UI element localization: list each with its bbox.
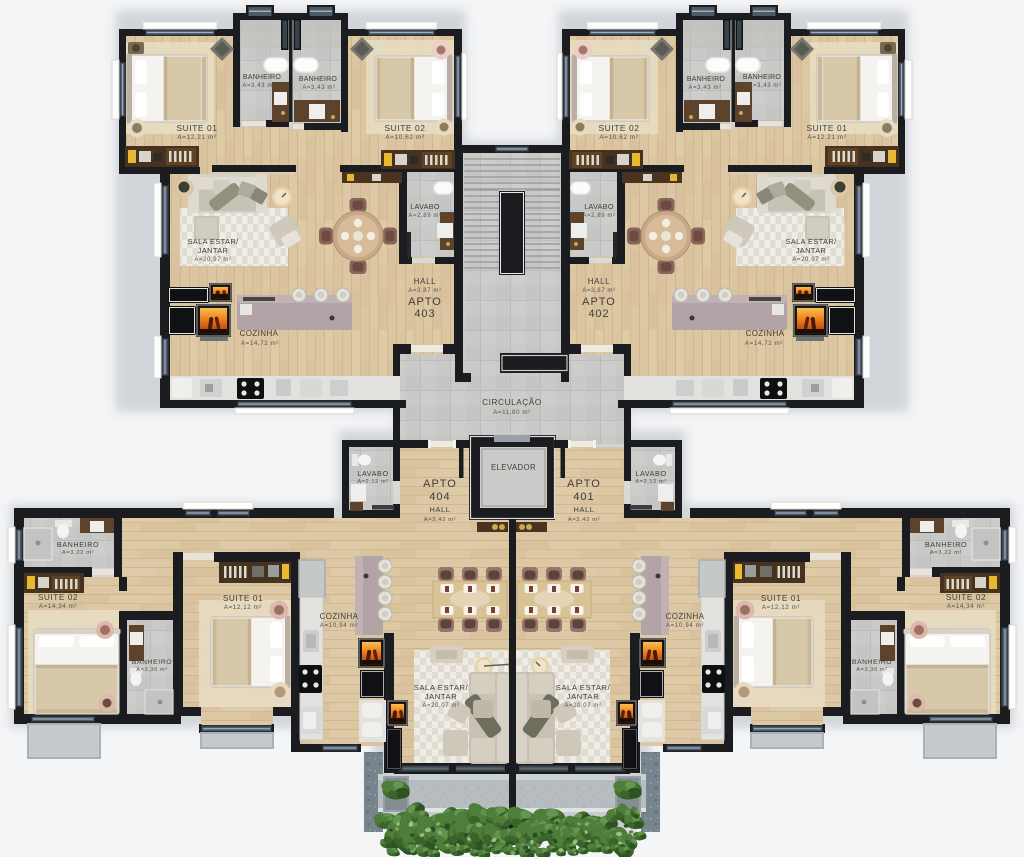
svg-text:A=3,42 m²: A=3,42 m²: [568, 517, 600, 523]
svg-text:APTO: APTO: [582, 296, 616, 308]
svg-text:A=12,12 m²: A=12,12 m²: [224, 604, 262, 611]
svg-text:A=3,87 m²: A=3,87 m²: [408, 288, 441, 294]
svg-text:SUITE 02: SUITE 02: [598, 123, 639, 133]
svg-text:LAVABO: LAVABO: [635, 469, 666, 478]
svg-text:A=10,62 m²: A=10,62 m²: [599, 134, 638, 141]
svg-text:SUITE 01: SUITE 01: [761, 594, 801, 603]
svg-text:BANHEIRO: BANHEIRO: [687, 76, 726, 83]
svg-text:JANTAR: JANTAR: [425, 692, 458, 701]
svg-text:SUITE 01: SUITE 01: [223, 594, 263, 603]
svg-text:HALL: HALL: [430, 505, 451, 514]
svg-text:ELEVADOR: ELEVADOR: [491, 463, 536, 472]
svg-text:SUITE 01: SUITE 01: [176, 123, 217, 133]
svg-text:JANTAR: JANTAR: [796, 246, 827, 255]
svg-text:COZINHA: COZINHA: [746, 329, 785, 338]
svg-text:A=3,43 m²: A=3,43 m²: [302, 85, 335, 91]
svg-text:SUITE 02: SUITE 02: [38, 593, 78, 602]
svg-text:A=3,42 m²: A=3,42 m²: [424, 517, 456, 523]
svg-text:APTO: APTO: [423, 478, 457, 490]
svg-text:BANHEIRO: BANHEIRO: [132, 659, 172, 666]
svg-text:A=3,87 m²: A=3,87 m²: [582, 288, 615, 294]
svg-text:A=20,97 m²: A=20,97 m²: [194, 257, 231, 263]
svg-text:A=12,12 m²: A=12,12 m²: [762, 604, 800, 611]
svg-text:APTO: APTO: [567, 478, 601, 490]
svg-text:A=10,94 m²: A=10,94 m²: [666, 622, 704, 629]
svg-text:SUITE 01: SUITE 01: [806, 123, 847, 133]
svg-text:SUITE 02: SUITE 02: [946, 593, 986, 602]
svg-text:LAVABO: LAVABO: [410, 202, 440, 211]
svg-text:401: 401: [573, 491, 594, 503]
svg-text:A=2,89 m²: A=2,89 m²: [582, 213, 615, 219]
svg-text:A=3,43 m²: A=3,43 m²: [688, 85, 721, 91]
svg-text:A=3,22 m²: A=3,22 m²: [62, 550, 94, 556]
svg-text:BANHEIRO: BANHEIRO: [925, 540, 967, 549]
svg-text:A=20,07 m²: A=20,07 m²: [564, 703, 601, 709]
svg-text:A=3,43 m²: A=3,43 m²: [748, 83, 781, 89]
svg-text:BANHEIRO: BANHEIRO: [57, 540, 99, 549]
svg-text:A=3,43 m²: A=3,43 m²: [242, 83, 275, 89]
svg-text:A=2,89 m²: A=2,89 m²: [408, 213, 441, 219]
svg-text:A=12,21 m²: A=12,21 m²: [807, 134, 846, 141]
svg-text:CIRCULAÇÃO: CIRCULAÇÃO: [482, 397, 542, 407]
svg-text:COZINHA: COZINHA: [320, 612, 359, 621]
svg-text:403: 403: [414, 308, 435, 320]
svg-text:HALL: HALL: [574, 505, 595, 514]
svg-text:404: 404: [429, 491, 450, 503]
svg-text:A=3,22 m²: A=3,22 m²: [930, 550, 962, 556]
svg-text:A=14,34 m²: A=14,34 m²: [39, 603, 77, 610]
svg-text:HALL: HALL: [414, 277, 436, 286]
svg-text:APTO: APTO: [408, 296, 442, 308]
svg-text:LAVABO: LAVABO: [357, 469, 388, 478]
svg-text:LAVABO: LAVABO: [584, 202, 614, 211]
svg-text:SALA ESTAR/: SALA ESTAR/: [556, 683, 611, 692]
svg-text:COZINHA: COZINHA: [240, 329, 279, 338]
svg-text:SALA ESTAR/: SALA ESTAR/: [187, 237, 239, 246]
svg-text:A=10,62 m²: A=10,62 m²: [385, 134, 424, 141]
svg-text:A=14,72 m²: A=14,72 m²: [745, 340, 783, 347]
svg-text:BANHEIRO: BANHEIRO: [743, 74, 782, 81]
svg-text:SUITE 02: SUITE 02: [384, 123, 425, 133]
svg-text:HALL: HALL: [588, 277, 610, 286]
svg-text:A=3,36 m²: A=3,36 m²: [136, 667, 167, 673]
svg-text:A=14,34 m²: A=14,34 m²: [947, 603, 985, 610]
svg-text:A=14,72 m²: A=14,72 m²: [241, 340, 279, 347]
svg-text:A=10,94 m²: A=10,94 m²: [320, 622, 358, 629]
svg-text:SALA ESTAR/: SALA ESTAR/: [785, 237, 837, 246]
svg-text:A=11,80 m²: A=11,80 m²: [493, 409, 531, 416]
svg-text:A=2,12 m²: A=2,12 m²: [357, 479, 388, 485]
svg-text:SALA ESTAR/: SALA ESTAR/: [414, 683, 469, 692]
svg-text:A=20,97 m²: A=20,97 m²: [792, 257, 829, 263]
svg-text:A=3,36 m²: A=3,36 m²: [856, 667, 887, 673]
svg-text:JANTAR: JANTAR: [567, 692, 600, 701]
svg-text:COZINHA: COZINHA: [666, 612, 705, 621]
svg-text:A=12,21 m²: A=12,21 m²: [177, 134, 216, 141]
svg-text:402: 402: [588, 308, 609, 320]
svg-text:A=2,12 m²: A=2,12 m²: [635, 479, 666, 485]
svg-text:JANTAR: JANTAR: [198, 246, 229, 255]
svg-text:A=20,07 m²: A=20,07 m²: [422, 703, 459, 709]
svg-text:BANHEIRO: BANHEIRO: [243, 74, 282, 81]
svg-text:BANHEIRO: BANHEIRO: [299, 76, 338, 83]
svg-text:BANHEIRO: BANHEIRO: [852, 659, 892, 666]
